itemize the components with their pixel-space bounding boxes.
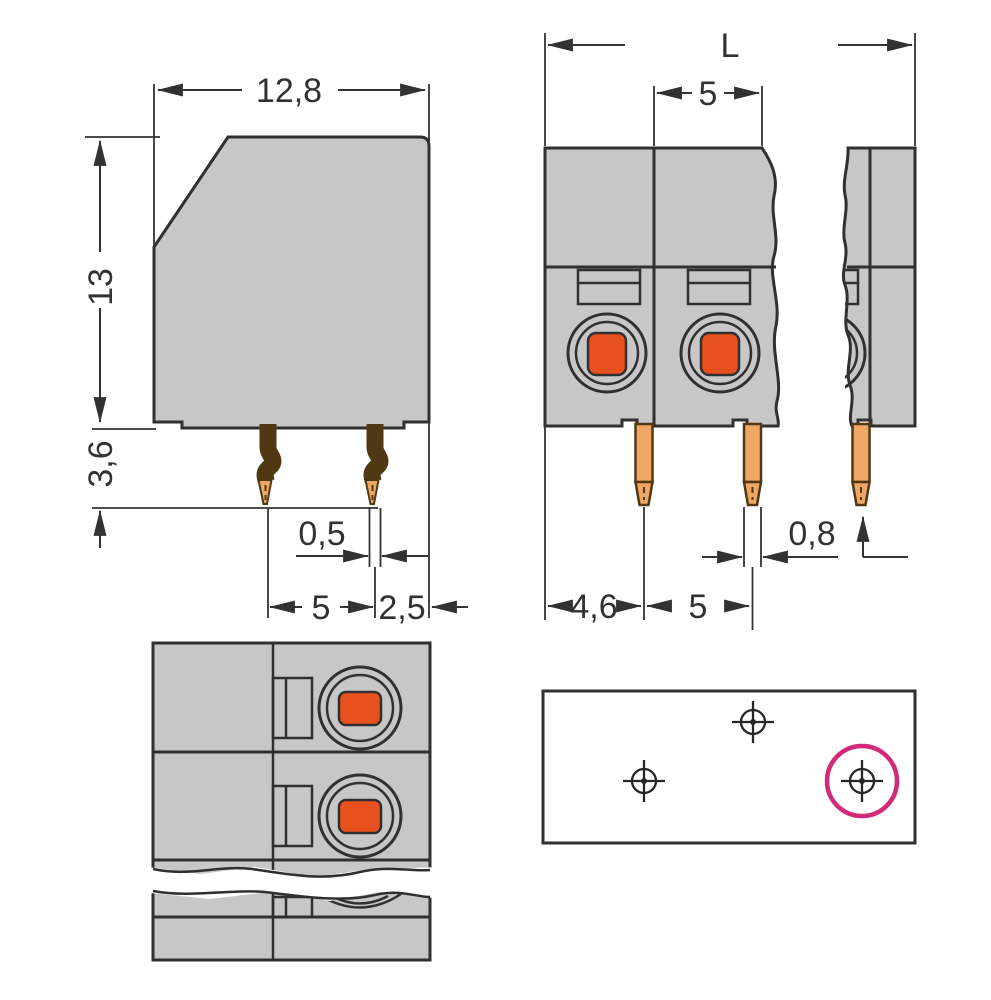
push-button xyxy=(339,692,381,725)
technical-drawing-page: 12,8 13 3,6 0,5 5 2,5 xyxy=(0,0,991,1000)
side-view: 12,8 13 3,6 0,5 5 2,5 xyxy=(82,72,468,627)
front-view: L 5 0,8 4,6 5 xyxy=(545,27,915,630)
housing-outline xyxy=(843,148,915,426)
dim-pin-length: 3,6 xyxy=(82,440,120,548)
end-piece xyxy=(787,148,915,426)
dim-total-length: L xyxy=(548,27,912,65)
solder-pin xyxy=(636,424,653,505)
solder-pin xyxy=(853,424,870,505)
dim-label-total-length: L xyxy=(721,27,740,65)
pcb-outline xyxy=(543,691,915,843)
dim-label-pin-edge: 2,5 xyxy=(378,589,425,627)
dim-pin-spacing: 5 2,5 xyxy=(270,589,468,627)
dim-housing-width: 12,8 xyxy=(158,72,425,110)
push-button xyxy=(588,333,626,375)
dim-edge-to-pin: 4,6 5 xyxy=(548,588,749,626)
dim-label-housing-width: 12,8 xyxy=(256,72,322,110)
solder-pin xyxy=(744,424,761,505)
terminal-block-drawing: 12,8 13 3,6 0,5 5 2,5 xyxy=(0,0,991,1000)
dim-label-front-pin-pitch: 5 xyxy=(689,588,708,626)
dim-label-pin-width: 0,8 xyxy=(788,515,835,553)
dim-label-pin-pitch: 5 xyxy=(312,589,331,627)
drilling-plan xyxy=(543,691,915,843)
dim-pole-pitch: 5 xyxy=(657,75,759,113)
dim-label-edge-to-pin: 4,6 xyxy=(570,588,617,626)
dim-label-pole-pitch: 5 xyxy=(699,75,718,113)
solder-pin xyxy=(259,424,274,504)
dim-label-pin-length: 3,6 xyxy=(82,440,120,487)
dim-pin-thickness: 0,5 xyxy=(296,515,428,556)
dim-pin-width: 0,8 xyxy=(702,515,908,557)
housing-outline xyxy=(154,137,429,428)
dim-label-pin-thickness: 0,5 xyxy=(298,515,345,553)
dim-label-housing-height: 13 xyxy=(82,268,120,306)
top-view xyxy=(140,643,444,960)
solder-pin xyxy=(366,424,381,504)
push-button xyxy=(339,800,381,833)
push-button xyxy=(701,333,739,375)
dim-housing-height: 13 xyxy=(82,141,120,422)
